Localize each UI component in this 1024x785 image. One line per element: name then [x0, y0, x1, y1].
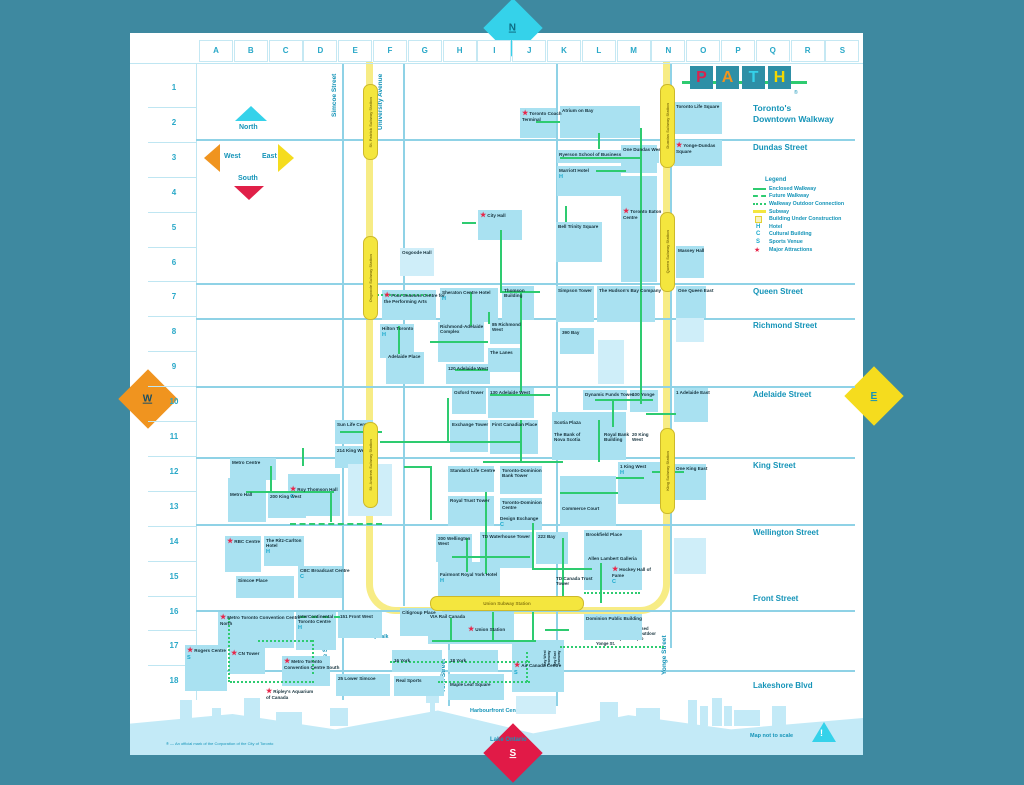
building	[676, 318, 704, 342]
building-label: 130 Adelaide West	[490, 390, 544, 395]
building-label: Toronto Life Square	[676, 104, 732, 109]
walkway-segment	[450, 618, 452, 642]
badge-C: C	[612, 579, 656, 585]
row-tick	[148, 561, 196, 562]
legend-label: Hotel	[769, 224, 782, 230]
street-label: Dundas Street	[753, 143, 807, 152]
legend-symbol	[753, 216, 769, 223]
badge-S: S	[514, 670, 574, 676]
skyline-building	[772, 706, 786, 726]
grid-column-N: N	[651, 40, 685, 62]
building-label: Adelaide Place	[388, 354, 434, 359]
row-tick	[148, 177, 196, 178]
row-tick	[148, 596, 196, 597]
legend-label: Building Under Construction	[769, 216, 841, 222]
subway-station: Queen Subway Station	[660, 212, 675, 292]
grid-column-A: A	[199, 40, 233, 62]
badge-C: C	[290, 494, 350, 500]
building-label: Massey Hall	[678, 248, 714, 253]
walkway-segment	[258, 640, 312, 642]
building-label: Atrium on Bay	[562, 108, 650, 113]
footnote: ® — An official mark of the Corporation …	[166, 741, 273, 746]
walkway-segment	[430, 341, 488, 343]
dots-symbol	[753, 203, 766, 205]
grid-column-C: C	[269, 40, 303, 62]
logo-letter-T: T	[742, 66, 765, 89]
walkway-segment	[532, 523, 534, 569]
building-label: ★Roy Thomson HallC	[290, 476, 350, 500]
walkway-segment	[500, 230, 502, 292]
building-label: Commerce Court	[562, 478, 626, 511]
attraction-star-icon: ★	[220, 614, 226, 621]
badge-C: C	[300, 574, 352, 580]
grid-row-16: 16	[166, 607, 182, 616]
legend-item: HHotel	[753, 223, 863, 231]
legend-label: Major Attractions	[769, 247, 812, 253]
grid-column-I: I	[477, 40, 511, 62]
row-tick	[148, 212, 196, 213]
solid-symbol	[753, 188, 766, 190]
building-label: 200 Wellington West	[438, 536, 482, 546]
street-line-queen-street	[196, 283, 855, 285]
grid-row-15: 15	[166, 572, 182, 581]
walkway-segment	[404, 466, 432, 468]
street-label: Queen Street	[753, 287, 803, 296]
path-map-page: PATH ® Toronto's Downtown Walkway North …	[0, 0, 1024, 785]
building-label: InterContinental Toronto CentreH	[298, 614, 346, 631]
walkway-segment	[595, 399, 653, 401]
building-label: Scotia Plaza	[554, 414, 636, 425]
row-tick	[148, 630, 196, 631]
walkway-segment	[560, 646, 664, 648]
grid-column-G: G	[408, 40, 442, 62]
skyline-building	[636, 708, 660, 726]
compass-west-icon	[204, 144, 220, 172]
subway-station-label: Queen Subway Station	[665, 230, 670, 273]
subway-station-label: St. Andrew Subway Station	[368, 439, 373, 491]
skyline-building	[212, 708, 221, 726]
grid-row-13: 13	[166, 502, 182, 511]
building-label: Dominion Public Building	[586, 616, 652, 621]
walkway-segment	[485, 492, 487, 574]
subway-station-label: King Subway Station	[665, 451, 670, 491]
legend-symbol	[753, 210, 769, 213]
row-tick	[148, 491, 196, 492]
street-label-vertical: Simcoe Street	[331, 64, 338, 126]
attraction-star-icon: ★	[522, 110, 528, 117]
legend-title: Legend	[765, 177, 863, 183]
legend-item: Enclosed Walkway	[753, 185, 863, 193]
subway-station: Osgoode Subway Station	[363, 236, 378, 320]
building-label: Royal Trust Tower	[450, 498, 504, 503]
attraction-star-icon: ★	[384, 292, 390, 299]
subway-station: St. Andrew Subway Station	[363, 422, 378, 508]
skyline-building	[724, 706, 732, 726]
building-label: 25 Lower Simcoe	[338, 676, 400, 681]
grid-row-17: 17	[166, 641, 182, 650]
building-label: ★City Hall	[480, 212, 532, 219]
subway-station: Dundas Subway Station	[660, 84, 675, 168]
legend-symbol	[753, 188, 769, 190]
building-label: 20 King West	[632, 432, 654, 442]
walkway-segment	[646, 413, 676, 415]
row-tick	[148, 421, 196, 422]
street-line-simcoe-street	[342, 64, 344, 700]
attraction-star-icon: ★	[231, 650, 237, 657]
compass-north-icon	[235, 106, 267, 121]
building-label: ★Metro Toronto Convention Centre South	[284, 658, 340, 670]
building-label: Royal Bank Building	[604, 432, 630, 442]
building-label: ★CN Tower	[231, 650, 275, 657]
grid-row-7: 7	[166, 292, 182, 301]
grid-row-4: 4	[166, 188, 182, 197]
street-label: Front Street	[753, 594, 798, 603]
grid-row-1: 1	[166, 83, 182, 92]
scale-note: Map not to scale	[750, 733, 793, 739]
row-tick	[148, 281, 196, 282]
street-label-vertical: Yonge Street	[661, 628, 668, 682]
street-label: Adelaide Street	[753, 390, 811, 399]
building-label: Simcoe Place	[238, 578, 304, 583]
skyline-building	[244, 698, 260, 726]
legend-label: Subway	[769, 209, 789, 215]
legend-label: Cultural Building	[769, 231, 812, 237]
skyline-building	[330, 708, 348, 726]
building-label: Design ExchangeC	[500, 516, 542, 528]
building-label: ★Rogers CentreS	[187, 647, 237, 661]
walkway-segment	[290, 523, 382, 525]
walkway-segment	[560, 157, 642, 159]
building-label: 222 Bay	[538, 534, 578, 539]
street-label: King Street	[753, 461, 796, 470]
walkway-segment	[430, 466, 432, 520]
building-label: One King East	[676, 466, 716, 471]
legend-symbol: ★	[753, 246, 769, 254]
legend-symbol	[753, 203, 769, 205]
badge-H: H	[442, 296, 508, 302]
building-label: 120 Adelaide West	[448, 366, 500, 371]
building	[674, 538, 706, 574]
attraction-star-icon: ★	[227, 538, 233, 545]
building-label: 85 Richmond West	[492, 322, 532, 332]
row-tick	[148, 351, 196, 352]
legend-item: SSports Venue	[753, 238, 863, 246]
legend-label: Enclosed Walkway	[769, 186, 816, 192]
row-tick	[148, 142, 196, 143]
legend: Legend Enclosed WalkwayFuture WalkwayWal…	[753, 177, 863, 253]
attraction-star-icon: ★	[290, 486, 296, 493]
street-label: Lakeshore Blvd	[753, 681, 813, 690]
building-label: Richmond-Adelaide Complex	[440, 324, 494, 334]
map-title: Toronto's Downtown Walkway	[753, 103, 834, 124]
street-label: Richmond Street	[753, 321, 817, 330]
legend-item: Subway	[753, 208, 863, 216]
skyline-building	[180, 700, 192, 726]
attraction-star-icon: ★	[187, 647, 193, 654]
walkway-segment	[452, 556, 530, 558]
grid-row-9: 9	[166, 362, 182, 371]
street-label: Wellington Street	[753, 528, 819, 537]
logo-letter-A: A	[716, 66, 739, 89]
compass-south-icon	[234, 186, 264, 200]
row-tick	[148, 526, 196, 527]
building-label: Osgoode Hall	[402, 250, 444, 255]
badge-H: H	[382, 332, 424, 338]
building-label: Toronto-Dominion Centre	[502, 500, 552, 510]
grid-row-12: 12	[166, 467, 182, 476]
building-label: ★Ripley's Aquarium of Canada	[266, 688, 316, 700]
badge-H: H	[298, 625, 346, 631]
skyline-building	[688, 700, 697, 726]
legend-item: CCultural Building	[753, 231, 863, 239]
row-tick	[148, 386, 196, 387]
walkway-segment	[562, 538, 564, 596]
walkway-segment	[447, 398, 449, 442]
row-tick	[148, 107, 196, 108]
row-tick	[148, 316, 196, 317]
building-label: ★Yonge-Dundas Square	[676, 142, 732, 154]
building-label: TD Canada Trust Tower	[556, 576, 596, 586]
attraction-star-icon: ★	[612, 566, 618, 573]
attraction-star-icon: ★	[676, 142, 682, 149]
building-label: 18 York	[450, 652, 508, 663]
letter-symbol-H: H	[756, 224, 760, 230]
grid-column-K: K	[547, 40, 581, 62]
building-label: ★Toronto Coach Terminal	[522, 110, 566, 122]
legend-symbol: H	[753, 224, 769, 230]
skyline-building	[712, 698, 722, 726]
skyline-building	[600, 702, 618, 726]
tagline-line1: Toronto's	[753, 103, 834, 114]
building-label: Metro Centre	[232, 460, 286, 465]
letter-symbol-C: C	[756, 231, 760, 237]
walkway-segment	[600, 563, 602, 603]
walkway-segment	[483, 461, 563, 463]
row-tick	[148, 456, 196, 457]
grid-row-11: 11	[166, 432, 182, 441]
building-label: Dynamic Funds Tower	[585, 392, 637, 397]
header-line	[130, 63, 863, 64]
grid-column-S: S	[825, 40, 859, 62]
subway-station: St. Patrick Subway Station	[363, 84, 378, 160]
construction-symbol	[755, 216, 762, 223]
building-label: ★Toronto Eaton Centre	[623, 178, 667, 220]
legend-item: Walkway Outdoor Connection	[753, 200, 863, 208]
grid-row-8: 8	[166, 327, 182, 336]
subway-station: King Subway Station	[660, 428, 675, 514]
building-label: ★RBC Centre	[227, 538, 271, 545]
subway-station: Union Subway Station	[430, 596, 584, 611]
attraction-star-icon: ★	[623, 208, 629, 215]
letter-symbol-S: S	[756, 239, 760, 245]
legend-label: Walkway Outdoor Connection	[769, 201, 844, 207]
lake-ontario-label: Lake Ontario	[490, 737, 527, 743]
building-label: The Ritz-Carlton HotelH	[266, 538, 314, 555]
registered-mark: ®	[794, 90, 798, 96]
star-icon: ★	[754, 246, 760, 254]
building-label: Bell Trinity Square	[558, 224, 612, 229]
building-label: First Canadian Place	[492, 422, 548, 427]
attraction-star-icon: ★	[468, 626, 474, 633]
grid-column-B: B	[234, 40, 268, 62]
compass-north-label: North	[239, 124, 258, 131]
legend-symbol: C	[753, 231, 769, 237]
badge-H: H	[559, 174, 631, 180]
building-label: Fairmont Royal York HotelH	[440, 564, 510, 584]
subway-symbol	[753, 210, 766, 213]
grid-row-18: 18	[166, 676, 182, 685]
walkway-segment	[598, 420, 600, 462]
warning-exclamation: !	[820, 728, 823, 738]
subway-station-label: St. Patrick Subway Station	[368, 97, 373, 147]
building-label: CBC Broadcast CentreC	[300, 568, 352, 580]
building-label: 151 Front West	[340, 614, 392, 619]
skyline-building	[426, 696, 439, 703]
building-label: The Bank of Nova Scotia	[554, 432, 588, 442]
walkway-segment	[230, 681, 314, 683]
walkway-segment	[584, 592, 640, 594]
path-logo: PATH ®	[682, 66, 852, 100]
building-label: Bay West Teamway	[544, 636, 553, 666]
building-label: 1 Adelaide East	[676, 390, 718, 395]
grid-column-M: M	[617, 40, 651, 62]
walkway-segment	[380, 441, 520, 443]
badge-H: H	[266, 549, 314, 555]
attraction-star-icon: ★	[480, 212, 486, 219]
grid-column-F: F	[373, 40, 407, 62]
building-label: 100 Yonge	[632, 392, 668, 397]
legend-label: Future Walkway	[769, 193, 809, 199]
grid-row-3: 3	[166, 153, 182, 162]
margin-line-vertical	[196, 64, 197, 700]
building-label: 16 York	[394, 652, 452, 663]
compass-east-label: East	[262, 153, 277, 160]
building-label: Ryerson School of Business	[559, 152, 669, 157]
skyline-building	[734, 710, 760, 726]
badge-C: C	[500, 522, 542, 528]
building-label: Allen Lambert Galleria	[588, 556, 640, 561]
tagline-line2: Downtown Walkway	[753, 114, 834, 125]
legend-symbol	[753, 195, 769, 197]
grid-column-H: H	[443, 40, 477, 62]
walkway-segment	[598, 133, 600, 149]
building-label: Simpson Tower	[558, 288, 604, 293]
grid-column-O: O	[686, 40, 720, 62]
attraction-star-icon: ★	[514, 662, 520, 669]
compass-east-icon	[278, 144, 294, 172]
legend-item: Future Walkway	[753, 193, 863, 201]
street-label-vertical: University Avenue	[377, 62, 384, 142]
grid-column-L: L	[582, 40, 616, 62]
walkway-segment	[565, 206, 567, 222]
building-label: Brookfield Place	[586, 532, 652, 537]
subway-station-label: Osgoode Subway Station	[368, 254, 373, 302]
building-label: ★Four Seasons Centre for the Performing …	[384, 292, 446, 304]
compass-south-label: South	[238, 175, 258, 182]
building-label: ★Union Station	[468, 626, 508, 633]
building-label: ★Metro Toronto Convention Centre North	[220, 614, 304, 626]
building-label: Maple Leaf Square	[450, 676, 514, 687]
building-label: Marriott HotelH	[559, 168, 631, 180]
legend-item: ★Major Attractions	[753, 246, 863, 254]
attraction-star-icon: ★	[284, 658, 290, 665]
building-label: VIA Rail Canada	[430, 614, 524, 619]
logo-letter-P: P	[690, 66, 713, 89]
building-label: Thomson Building	[504, 288, 544, 298]
attraction-star-icon: ★	[266, 688, 272, 695]
building	[516, 696, 556, 714]
legend-label: Sports Venue	[769, 239, 803, 245]
building-label: One Queen East	[678, 288, 716, 293]
grid-row-5: 5	[166, 223, 182, 232]
badge-H: H	[440, 578, 510, 584]
street-line-king-street	[196, 457, 855, 459]
legend-items: Enclosed WalkwayFuture WalkwayWalkway Ou…	[753, 185, 863, 253]
grid-row-2: 2	[166, 118, 182, 127]
building-label: ★Hockey Hall of FameC	[612, 566, 656, 585]
building-label: Hilton TorontoH	[382, 326, 424, 338]
row-tick	[148, 247, 196, 248]
walkway-segment	[488, 312, 490, 324]
building-label: The Hudson's Bay Company	[599, 288, 665, 293]
grid-column-Q: Q	[756, 40, 790, 62]
building	[598, 340, 624, 384]
grid-column-D: D	[303, 40, 337, 62]
grid-column-P: P	[721, 40, 755, 62]
walkway-segment	[302, 448, 304, 466]
building-label: Real Sports	[396, 678, 454, 683]
walkway-segment	[640, 128, 642, 404]
walkway-segment	[532, 612, 534, 642]
legend-item: Building Under Construction	[753, 215, 863, 223]
building-label: Bay East Teamway	[554, 636, 563, 666]
warning-triangle-icon	[812, 722, 836, 742]
logo-letter-H: H	[768, 66, 791, 89]
grid-column-E: E	[338, 40, 372, 62]
grid-column-J: J	[512, 40, 546, 62]
grid-row-6: 6	[166, 258, 182, 267]
building-label: Toronto-Dominion Bank Tower	[502, 468, 552, 478]
walkway-segment	[462, 222, 476, 224]
legend-symbol: S	[753, 239, 769, 245]
grid-row-10: 10	[166, 397, 182, 406]
skyline-building	[700, 706, 708, 726]
building-label: 390 Bay	[562, 330, 604, 335]
grid-row-14: 14	[166, 537, 182, 546]
walkway-segment	[545, 629, 569, 631]
building-label: Sheraton Centre HotelH	[442, 290, 508, 302]
building-label: The Lanes	[490, 350, 532, 355]
dash-symbol	[753, 195, 766, 197]
walkway-segment	[520, 292, 522, 392]
building-label: TD Waterhouse Tower	[482, 534, 542, 539]
badge-S: S	[187, 655, 237, 661]
compass-west-label: West	[224, 153, 241, 160]
building-label: Standard Life Centre	[450, 468, 504, 473]
street-line-dundas-street	[196, 139, 855, 141]
grid-column-R: R	[791, 40, 825, 62]
subway-station-label: Dundas Subway Station	[665, 103, 670, 149]
skyline-building	[276, 712, 302, 726]
